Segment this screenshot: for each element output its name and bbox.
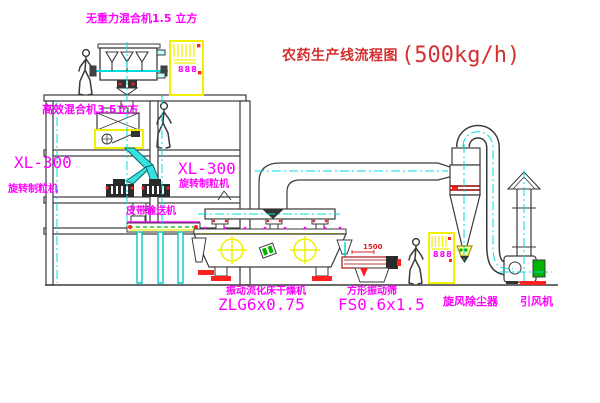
- cabinet1-display: 888: [178, 66, 198, 74]
- exhaust-duct: [259, 163, 453, 210]
- label-belt-conveyor: 皮带输送机: [126, 207, 176, 217]
- granulator-right: [142, 179, 171, 197]
- floor3-slab: [44, 197, 246, 203]
- label-granulator-right-name: 旋转制粒机: [179, 180, 229, 190]
- fluid-bed-dryer: [192, 209, 352, 281]
- label-mid-mixer: 高效混合机3.5立方: [42, 104, 139, 115]
- diagram-title: 农药生产线流程图 (500kg/h): [282, 45, 520, 67]
- label-granulator-left-name: 旋转制粒机: [8, 185, 58, 195]
- label-dryer-model: ZLG6x0.75: [218, 297, 305, 313]
- belt-conveyor-machine: [127, 216, 200, 283]
- induced-draft-fan: [504, 256, 546, 285]
- label-cyclone: 旋风除尘器: [443, 296, 498, 307]
- label-granulator-right-model: XL-300: [178, 161, 236, 177]
- top-mixer-machine: [90, 44, 168, 95]
- title-capacity: (500kg/h): [401, 45, 520, 67]
- label-fan: 引风机: [520, 296, 553, 307]
- pesticide-line-flow-diagram: 农药生产线流程图 (500kg/h) 无重力混合机1.5 立方 高效混合机3.5…: [0, 0, 600, 403]
- cabinet2-display: 888: [433, 251, 453, 259]
- label-top-mixer: 无重力混合机1.5 立方: [86, 13, 197, 24]
- label-sieve-model: FS0.6x1.5: [338, 297, 425, 313]
- title-chinese: 农药生产线流程图: [282, 49, 398, 63]
- floor2-slab: [44, 150, 246, 156]
- dimension-1500: 1500: [363, 244, 382, 251]
- square-vibrating-sieve: [342, 250, 401, 282]
- worker-floor2: [157, 103, 171, 148]
- label-granulator-left-model: XL-300: [14, 155, 72, 171]
- roof-slab: [44, 95, 246, 101]
- worker-ground: [409, 239, 423, 284]
